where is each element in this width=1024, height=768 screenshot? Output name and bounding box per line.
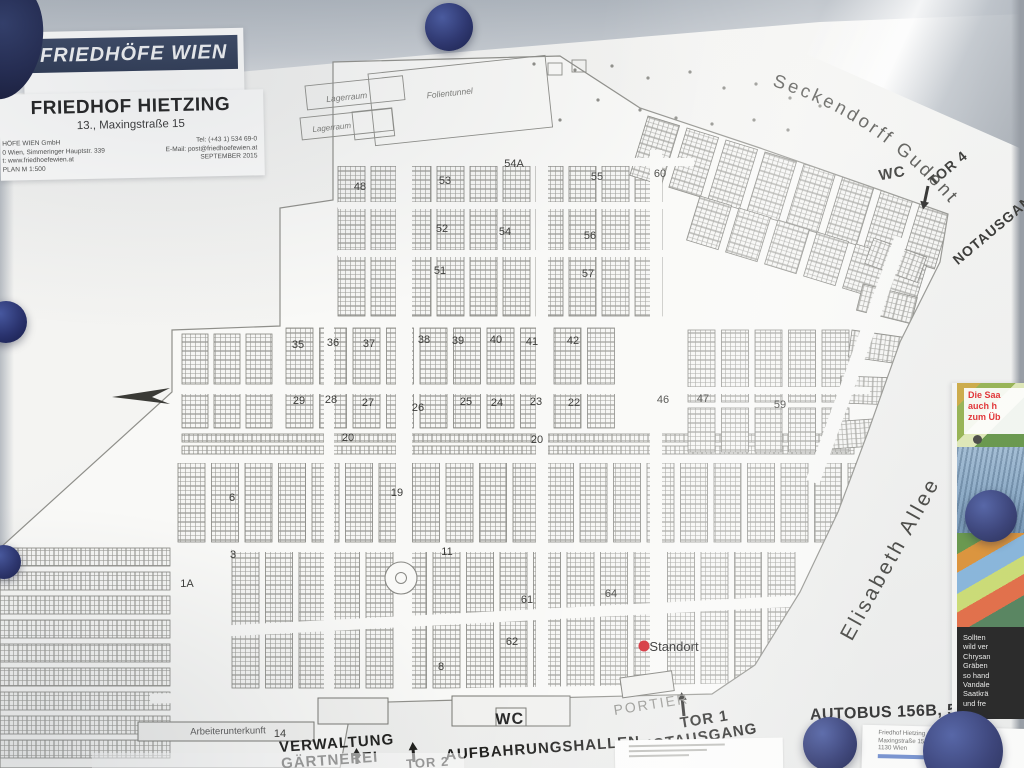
tree-dot xyxy=(688,70,691,73)
grave-block xyxy=(0,644,170,662)
grave-block xyxy=(353,328,380,384)
tree-dot xyxy=(710,122,713,125)
grave-block xyxy=(602,208,629,250)
info-line: PLAN M 1:500 xyxy=(3,164,106,175)
grave-block xyxy=(299,550,326,688)
grave-group-number: 36 xyxy=(327,337,339,349)
map-label: WC xyxy=(495,711,524,729)
poster-text-line: wild ver xyxy=(963,642,1024,651)
poster-image-garden: Die Saaauch hzum Üb xyxy=(957,383,1024,447)
grave-block xyxy=(266,550,293,688)
poster-text-panel: Solltenwild verChrysanGräbenso handVanda… xyxy=(957,627,1024,719)
tree-dot xyxy=(786,128,789,131)
grave-block xyxy=(371,208,398,250)
grave-block xyxy=(470,208,497,250)
grave-group-number: 64 xyxy=(605,588,617,600)
grave-block xyxy=(513,460,540,542)
poster-headline-box: Die Saaauch hzum Üb xyxy=(964,388,1024,434)
grave-block xyxy=(279,460,306,542)
brand-name: FRIEDHÖFE WIEN xyxy=(40,41,228,68)
illegible-text-bar xyxy=(629,744,725,748)
poster-text-line: und fre xyxy=(963,699,1024,708)
grave-group-number: 55 xyxy=(591,171,603,183)
grave-block xyxy=(446,460,473,542)
photo-of-cemetery-map-board: Seckendorff Gudent Weg Elisabeth AlleeWC… xyxy=(0,0,1024,768)
tree-dot xyxy=(573,68,576,71)
grave-group-number: 39 xyxy=(452,335,464,347)
grave-block xyxy=(286,328,313,384)
grave-group-number: 20 xyxy=(531,434,543,446)
grave-block xyxy=(503,256,530,316)
grave-block xyxy=(701,550,728,688)
grave-group-number: 60 xyxy=(654,168,666,180)
grave-group-number: 29 xyxy=(293,395,305,407)
grave-group-number: 41 xyxy=(526,336,538,348)
roundabout xyxy=(385,562,417,594)
grave-block xyxy=(371,166,398,202)
grave-group-number: 40 xyxy=(490,334,502,346)
grave-block xyxy=(668,550,695,688)
poster-headline-line: zum Üb xyxy=(968,412,1024,423)
grave-group-number: 19 xyxy=(391,487,403,499)
grave-block xyxy=(602,166,629,202)
friedhoefe-wien-logo: FRIEDHÖFE WIEN xyxy=(29,35,238,73)
grave-block xyxy=(371,256,398,316)
grave-group-number: 47 xyxy=(697,393,709,405)
grave-group-number: 14 xyxy=(274,728,286,740)
grave-group-number: 42 xyxy=(567,335,579,347)
map-road xyxy=(338,250,694,257)
grave-block xyxy=(0,548,170,566)
grave-group-number: 38 xyxy=(418,334,430,346)
map-label: Standort xyxy=(649,639,699,654)
grave-block xyxy=(182,334,208,384)
map-road xyxy=(170,387,870,394)
grave-group-number: 23 xyxy=(530,396,542,408)
grave-group-number: 62 xyxy=(506,636,518,648)
grave-block xyxy=(182,434,854,442)
grave-block xyxy=(781,460,808,542)
grave-block xyxy=(413,460,440,542)
grave-group-number: 37 xyxy=(363,338,375,350)
poster-text-line: Chrysan xyxy=(963,652,1024,661)
map-label: Arbeiterunterkunft xyxy=(190,725,266,737)
small-label-card xyxy=(615,738,784,768)
grave-block xyxy=(0,692,170,710)
tree-dot xyxy=(646,76,649,79)
grave-block xyxy=(214,392,240,428)
tree-dot xyxy=(788,96,791,99)
grave-block xyxy=(614,460,641,542)
map-road xyxy=(232,543,852,552)
building-outline xyxy=(318,698,388,724)
grave-group-number: 26 xyxy=(412,402,424,414)
grave-block xyxy=(569,256,596,316)
grave-group-number: 24 xyxy=(491,397,503,409)
tree-dot xyxy=(558,118,561,121)
poster-image-detail xyxy=(973,435,982,444)
paper-strip xyxy=(92,753,464,768)
grave-block xyxy=(246,334,272,384)
grave-group-number: 54 xyxy=(499,226,511,238)
contact-info: Tel: (+43 1) 534 69-0E-Mail: post@friedh… xyxy=(165,135,260,171)
grave-group-number: 56 xyxy=(584,230,596,242)
grave-group-number: 61 xyxy=(521,594,533,606)
poster-text-line: Sollten xyxy=(963,633,1024,642)
grave-block xyxy=(580,460,607,542)
grave-block xyxy=(602,256,629,316)
poster-text-line: Vandale xyxy=(963,680,1024,689)
grave-group-number: 1A xyxy=(180,578,194,590)
grave-block xyxy=(569,208,596,250)
grave-block xyxy=(0,668,170,686)
grave-block xyxy=(0,572,170,590)
tree-dot xyxy=(638,108,641,111)
title-card: FRIEDHOF HIETZING 13., Maxingstraße 15 H… xyxy=(0,89,265,181)
poster-text-line: Gräben xyxy=(963,661,1024,670)
map-road xyxy=(338,202,694,209)
tree-dot xyxy=(722,86,725,89)
grave-block xyxy=(735,550,762,688)
grave-block xyxy=(246,392,272,428)
grave-block xyxy=(182,446,854,454)
grave-group-number: 59 xyxy=(774,399,786,411)
direction-arrow xyxy=(112,388,170,404)
grave-block xyxy=(214,334,240,384)
map-label: NOTAUSGANG xyxy=(949,185,1024,268)
grave-group-number: 11 xyxy=(441,546,452,558)
poster-image-mosaic xyxy=(957,533,1024,627)
grave-block xyxy=(0,596,170,614)
grave-block xyxy=(470,256,497,316)
grave-block xyxy=(588,392,615,428)
magnet xyxy=(425,3,473,51)
grave-block xyxy=(714,460,741,542)
grave-block xyxy=(567,550,594,688)
magnet xyxy=(965,490,1017,542)
grave-group-number: 8 xyxy=(438,661,444,673)
magnet xyxy=(803,717,857,768)
grave-block xyxy=(480,460,507,542)
grave-block xyxy=(338,256,365,316)
grave-group-number: 27 xyxy=(362,397,374,409)
tree-dot xyxy=(610,64,613,67)
grave-block xyxy=(232,550,259,688)
grave-group-number: 48 xyxy=(354,181,366,193)
grave-block xyxy=(748,460,775,542)
grave-group-number: 25 xyxy=(460,396,472,408)
poster-headline-line: auch h xyxy=(968,401,1024,412)
grave-block xyxy=(601,550,628,688)
tree-dot xyxy=(754,82,757,85)
map-label: WC xyxy=(877,163,907,184)
grave-group-number: 22 xyxy=(568,397,580,409)
poster-headline-line: Die Saa xyxy=(968,390,1024,401)
map-road xyxy=(536,150,548,708)
grave-block xyxy=(503,166,530,202)
illegible-text-bar xyxy=(629,754,689,757)
grave-block xyxy=(848,460,875,542)
grave-block xyxy=(755,408,782,452)
grave-block xyxy=(681,460,708,542)
poster-text-line: so hand xyxy=(963,671,1024,680)
grave-block xyxy=(547,460,574,542)
grave-group-number: 52 xyxy=(436,223,448,235)
map-road xyxy=(650,150,662,710)
info-line: SEPTEMBER 2015 xyxy=(166,153,258,164)
grave-group-number: 46 xyxy=(657,394,669,406)
map-road xyxy=(168,455,868,463)
publisher-info: HÖFE WIEN GmbH0 Wien, Simmeringer Haupts… xyxy=(2,139,105,176)
grave-block xyxy=(470,166,497,202)
current-location-dot xyxy=(639,641,650,652)
grave-group-number: 35 xyxy=(292,339,304,351)
illegible-text-bar xyxy=(629,749,707,752)
map-label: AUFBAHRUNGSHALLEN xyxy=(445,733,641,764)
tree-dot xyxy=(674,116,677,119)
map-label: Elisabeth Allee xyxy=(836,473,945,644)
grave-group-number: 20 xyxy=(342,432,354,444)
grave-block xyxy=(768,550,795,688)
grave-block xyxy=(722,408,749,452)
tree-dot xyxy=(596,98,599,101)
grave-group-number: 53 xyxy=(439,175,451,187)
grave-block xyxy=(338,208,365,250)
grave-group-number: 57 xyxy=(582,268,594,280)
grave-block xyxy=(182,392,208,428)
grave-group-number: 6 xyxy=(229,492,235,504)
grave-block xyxy=(245,460,272,542)
grave-block xyxy=(588,328,615,384)
grave-group-number: 3 xyxy=(230,549,236,561)
grave-block xyxy=(346,460,373,542)
tree-dot xyxy=(532,62,535,65)
grave-group-number: 54A xyxy=(504,158,524,170)
tree-dot xyxy=(752,118,755,121)
grave-block xyxy=(0,620,170,638)
grave-block xyxy=(688,408,715,452)
poster-text-line: Saatkrä xyxy=(963,689,1024,698)
grave-group-number: 51 xyxy=(434,265,446,277)
grave-block xyxy=(789,408,816,452)
notice-poster: Die Saaauch hzum Üb Solltenwild verChrys… xyxy=(952,383,1024,713)
grave-block xyxy=(178,460,205,542)
grave-group-number: 28 xyxy=(325,394,337,406)
